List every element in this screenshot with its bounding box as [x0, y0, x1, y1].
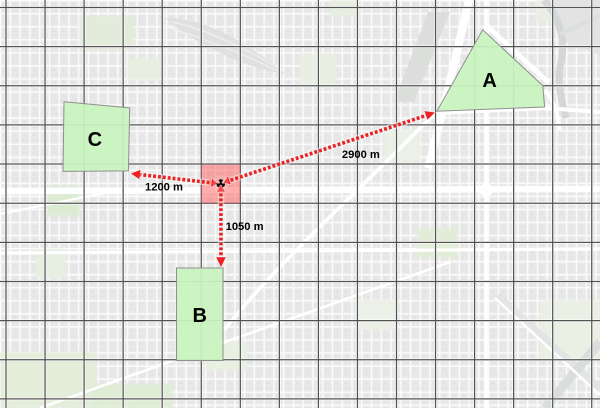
svg-text:1200 m: 1200 m [145, 181, 183, 193]
svg-text:A: A [482, 70, 496, 92]
svg-text:C: C [88, 129, 102, 151]
svg-text:2900 m: 2900 m [342, 149, 380, 161]
svg-text:1050 m: 1050 m [226, 221, 264, 233]
svg-text:B: B [192, 305, 206, 327]
